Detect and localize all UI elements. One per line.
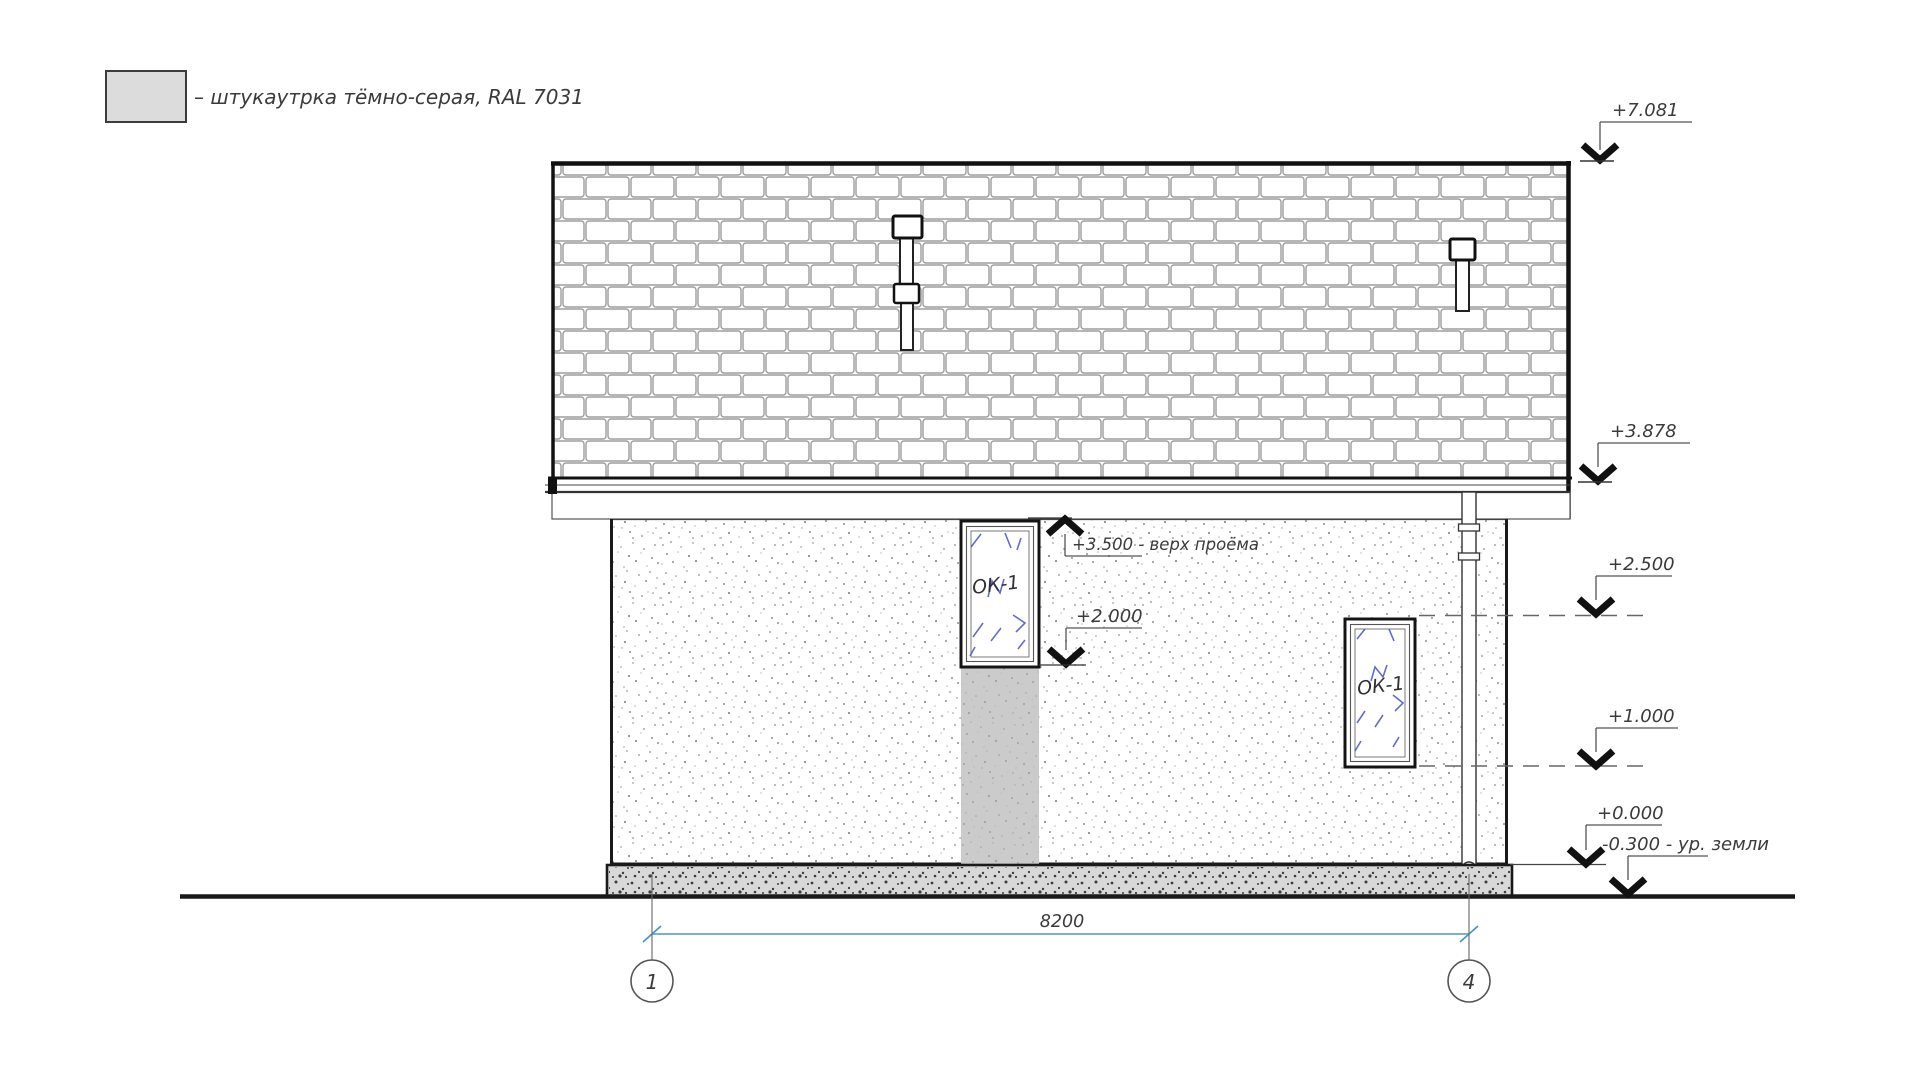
legend: – штукаутрка тёмно-серая, RAL 7031 <box>106 71 584 122</box>
dimension-8200: 8200 <box>643 912 1478 942</box>
marker-chevron-down <box>1611 879 1645 894</box>
marker-chevron-down <box>1579 599 1613 614</box>
downpipe-collar-2 <box>1459 553 1480 560</box>
elevation-marker-7081: +7.081 <box>1580 100 1692 161</box>
elevation-marker-1000: +1.000 <box>1579 706 1678 766</box>
elevation-label-7081: +7.081 <box>1612 100 1679 121</box>
eave-gutter <box>545 479 1570 519</box>
elevation-label-2500: +2.500 <box>1608 554 1675 575</box>
legend-swatch <box>106 71 186 122</box>
plinth <box>607 865 1512 896</box>
window-2: ОК-1 <box>1345 619 1415 767</box>
elevation-label-1000: +1.000 <box>1608 706 1675 727</box>
downpipe <box>1459 492 1480 876</box>
downpipe-body <box>1462 492 1476 868</box>
marker-chevron-down <box>1569 849 1603 864</box>
window-1: ОК-1 <box>961 521 1039 667</box>
elevation-marker-minus0300: -0.300 - ур. земли <box>1602 834 1769 894</box>
elevation-markers-right: +7.081 +3.878 +2.500 +1.000 +0.000 <box>1569 100 1769 894</box>
elevation-marker-3878: +3.878 <box>1578 421 1690 482</box>
axis-4-number: 4 <box>1463 970 1476 994</box>
vent1-lower-stem <box>901 303 913 350</box>
vent1-upper-stem <box>900 238 913 284</box>
gutter-end-cap <box>548 479 557 494</box>
legend-label: – штукаутрка тёмно-серая, RAL 7031 <box>194 85 584 109</box>
downpipe-collar-1 <box>1459 524 1480 531</box>
marker-chevron-down <box>1581 466 1615 481</box>
roof <box>548 161 1572 519</box>
vent1-cap <box>893 216 922 238</box>
axis-1-number: 1 <box>646 970 659 994</box>
plinth-texture <box>609 867 1510 894</box>
vent2-cap <box>1450 239 1475 260</box>
grey-strip-texture <box>961 666 1039 864</box>
roof-shingle-field <box>554 165 1568 478</box>
elevation-label-3878: +3.878 <box>1610 421 1677 442</box>
elevation-marker-2500: +2.500 <box>1579 554 1675 614</box>
soffit-band <box>552 492 1570 519</box>
elevation-drawing-canvas: – штукаутрка тёмно-серая, RAL 7031 <box>0 0 1920 1080</box>
wall-grey-strip <box>961 666 1039 864</box>
vent2-stem <box>1456 260 1469 311</box>
opening-label-3500: +3.500 - верх проёма <box>1072 535 1259 554</box>
marker-chevron-down <box>1579 751 1613 766</box>
elevation-label-0000: +0.000 <box>1597 803 1664 824</box>
vent1-coupling <box>894 284 919 303</box>
opening-label-2000: +2.000 <box>1076 606 1143 627</box>
facade-elevation-svg: – штукаутрка тёмно-серая, RAL 7031 <box>0 0 1920 1080</box>
elevation-label-minus0300: -0.300 - ур. земли <box>1602 834 1769 855</box>
dimension-value: 8200 <box>1040 912 1085 932</box>
